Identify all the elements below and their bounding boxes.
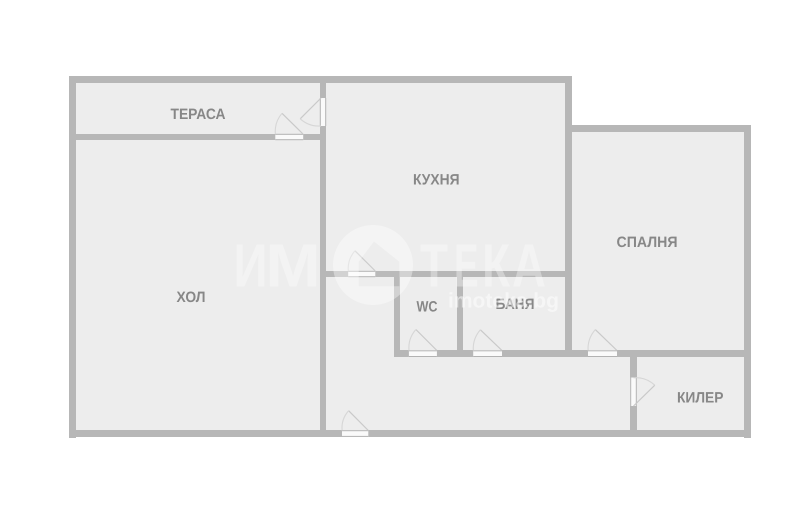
svg-text:КУХНЯ: КУХНЯ — [413, 172, 460, 189]
svg-text:М: М — [266, 232, 321, 300]
svg-text:Т: Т — [420, 232, 448, 300]
svg-text:imoteka.bg: imoteka.bg — [448, 290, 559, 313]
svg-text:WC: WC — [417, 299, 438, 316]
svg-text:И: И — [234, 232, 268, 300]
svg-text:КИЛЕР: КИЛЕР — [677, 390, 724, 407]
svg-text:ХОЛ: ХОЛ — [177, 289, 206, 306]
svg-text:СПАЛНЯ: СПАЛНЯ — [617, 234, 678, 251]
svg-text:ТЕРАСА: ТЕРАСА — [171, 106, 226, 123]
